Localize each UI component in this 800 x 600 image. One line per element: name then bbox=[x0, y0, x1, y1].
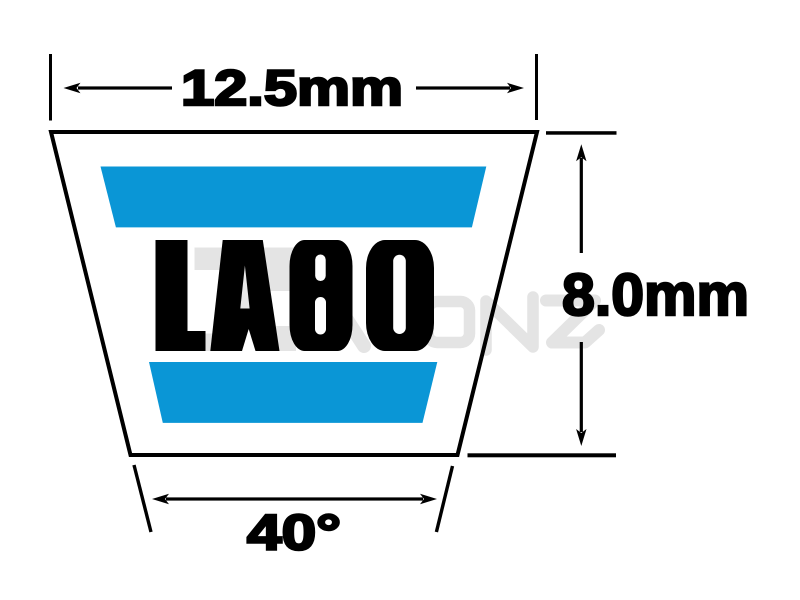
svg-text:40°: 40° bbox=[247, 504, 341, 560]
svg-text:8.0mm: 8.0mm bbox=[562, 262, 749, 328]
svg-text:12.5mm: 12.5mm bbox=[181, 60, 403, 116]
